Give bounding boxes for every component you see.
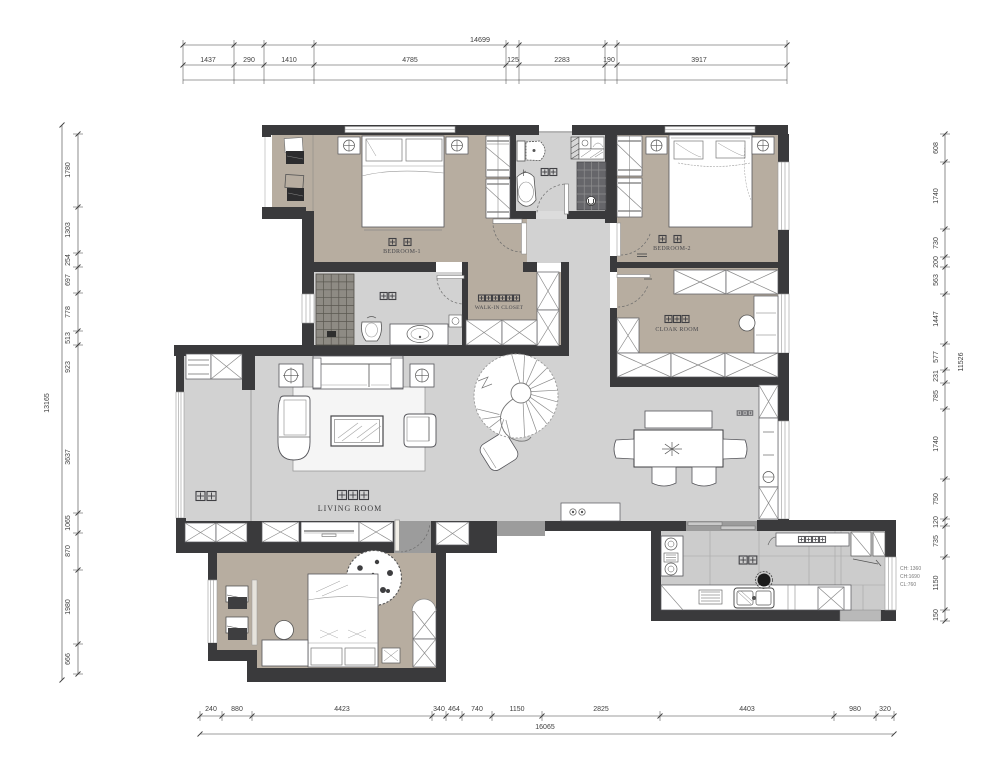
svg-text:4423: 4423: [334, 706, 350, 713]
svg-text:CH: 1360: CH: 1360: [900, 566, 921, 572]
svg-text:1303: 1303: [65, 222, 72, 238]
svg-text:1437: 1437: [200, 57, 216, 64]
svg-text:730: 730: [933, 237, 940, 249]
svg-text:2825: 2825: [593, 706, 609, 713]
svg-text:CL:760: CL:760: [900, 582, 916, 588]
svg-text:4403: 4403: [739, 706, 755, 713]
svg-text:778: 778: [65, 306, 72, 318]
svg-text:980: 980: [849, 706, 861, 713]
svg-text:1150: 1150: [509, 706, 524, 713]
svg-text:BEDROOM-2: BEDROOM-2: [653, 246, 691, 252]
svg-text:1980: 1980: [65, 599, 72, 615]
svg-text:3917: 3917: [691, 57, 707, 64]
svg-text:120: 120: [933, 516, 940, 528]
svg-text:608: 608: [933, 142, 940, 154]
svg-text:923: 923: [65, 361, 72, 373]
svg-text:125: 125: [507, 57, 519, 64]
svg-text:464: 464: [448, 706, 460, 713]
svg-text:14699: 14699: [470, 35, 490, 44]
svg-text:240: 240: [205, 706, 217, 713]
svg-text:3637: 3637: [65, 449, 72, 465]
svg-text:13165: 13165: [44, 393, 51, 413]
svg-text:BEDROOM-1: BEDROOM-1: [383, 249, 421, 255]
svg-text:785: 785: [933, 390, 940, 402]
svg-text:740: 740: [471, 706, 483, 713]
svg-text:1447: 1447: [933, 311, 940, 327]
svg-text:200: 200: [933, 256, 940, 268]
svg-text:666: 666: [65, 653, 72, 665]
svg-text:2283: 2283: [554, 57, 570, 64]
svg-text:231: 231: [933, 370, 940, 382]
svg-text:290: 290: [243, 57, 255, 64]
svg-text:870: 870: [65, 545, 72, 557]
svg-text:735: 735: [933, 535, 940, 547]
svg-text:11526: 11526: [958, 352, 965, 371]
svg-text:CH:1690: CH:1690: [900, 574, 920, 580]
svg-text:1150: 1150: [933, 575, 940, 590]
svg-text:1065: 1065: [65, 515, 72, 531]
svg-text:1780: 1780: [65, 162, 72, 178]
svg-text:340: 340: [433, 706, 445, 713]
svg-text:CLOAK ROOM: CLOAK ROOM: [655, 327, 699, 333]
svg-text:1740: 1740: [933, 436, 940, 452]
svg-text:513: 513: [65, 332, 72, 344]
svg-text:WALK-IN CLOSET: WALK-IN CLOSET: [475, 305, 524, 311]
svg-text:1740: 1740: [933, 188, 940, 204]
svg-text:4785: 4785: [402, 57, 418, 64]
svg-text:190: 190: [603, 57, 615, 64]
svg-text:563: 563: [933, 274, 940, 286]
svg-text:254: 254: [65, 254, 72, 266]
svg-text:697: 697: [65, 274, 72, 286]
svg-text:320: 320: [879, 706, 891, 713]
svg-text:1410: 1410: [281, 57, 297, 64]
svg-text:880: 880: [231, 706, 243, 713]
svg-text:577: 577: [933, 351, 940, 363]
svg-text:LIVING ROOM: LIVING ROOM: [318, 504, 383, 513]
svg-text:150: 150: [933, 609, 940, 621]
svg-text:16065: 16065: [535, 724, 555, 731]
svg-text:750: 750: [933, 493, 940, 505]
